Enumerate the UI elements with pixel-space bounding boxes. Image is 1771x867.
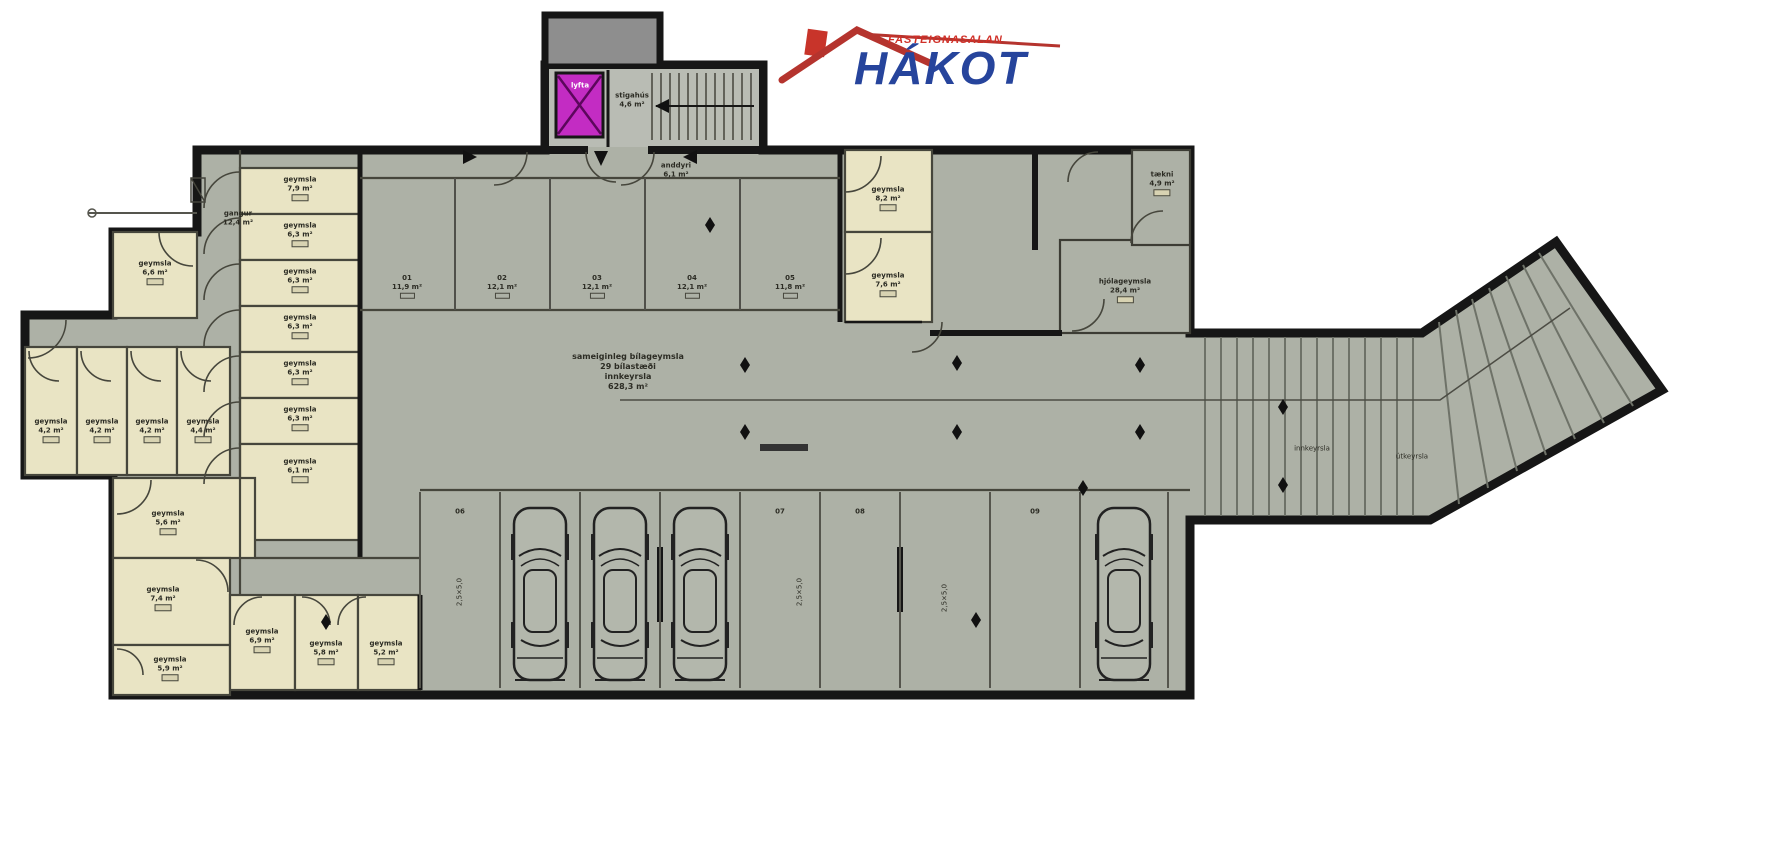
room-label: geymsla7,4 m² [147,585,180,611]
garage-area-label: sameiginleg bílageymsla29 bílastæðiinnke… [572,352,684,392]
room-label: geymsla6,3 m² [284,221,317,247]
room-label: geymsla6,3 m² [284,405,317,431]
parking-spot-label: 07 [775,508,785,517]
spot-dimension-label: 2,5×5,0 [941,584,950,612]
parking-spot-label: 09 [1030,508,1040,517]
room-label: geymsla4,2 m² [35,417,68,443]
room-label: geymsla7,6 m² [872,271,905,297]
car-icon [1094,508,1154,680]
elevator-label: lyfta [571,82,589,91]
area-label: stigahús4,6 m² [615,91,649,109]
room-label: geymsla6,3 m² [284,313,317,339]
car-icon [670,508,730,680]
car-icon [510,508,570,680]
parking-unit-label: 0511,8 m² [775,274,805,299]
room-label: geymsla4,2 m² [136,417,169,443]
room-label: geymsla5,9 m² [154,655,187,681]
ramp-label: innkeyrsla [1294,445,1330,454]
area-label: anddyri6,1 m² [661,161,691,179]
floor-plan-page: FASTEIGNASALAN HÁKOT [0,0,1771,867]
room-label: geymsla4,4 m² [187,417,220,443]
parking-spot-label: 06 [455,508,465,517]
room-label: geymsla4,2 m² [86,417,119,443]
parking-unit-label: 0212,1 m² [487,274,517,299]
spot-dimension-label: 2,5×5,0 [456,578,465,606]
room-label: geymsla7,9 m² [284,175,317,201]
room-label: hjólageymsla28,4 m² [1099,277,1151,303]
room-label: geymsla6,3 m² [284,359,317,385]
room-label: geymsla6,3 m² [284,267,317,293]
vestibule-box [545,15,660,67]
room-label: geymsla5,8 m² [310,639,343,665]
room-label: geymsla5,6 m² [152,509,185,535]
room-label: geymsla6,6 m² [139,259,172,285]
room-label: tækni4,9 m² [1149,170,1174,196]
room-label: geymsla8,2 m² [872,185,905,211]
room-label: geymsla6,9 m² [246,627,279,653]
parking-unit-label: 0111,9 m² [392,274,422,299]
parking-spot-label: 08 [855,508,865,517]
floor-plan-svg [0,0,1771,867]
room-label: geymsla5,2 m² [370,639,403,665]
parking-unit-label: 0312,1 m² [582,274,612,299]
area-label: gangur12,4 m² [223,209,253,227]
ramp-label: útkeyrsla [1396,453,1428,462]
room-label: geymsla6,1 m² [284,457,317,483]
spot-dimension-label: 2,5×5,0 [796,578,805,606]
entrance-walkway [88,178,205,217]
car-icon [590,508,650,680]
parking-unit-label: 0412,1 m² [677,274,707,299]
